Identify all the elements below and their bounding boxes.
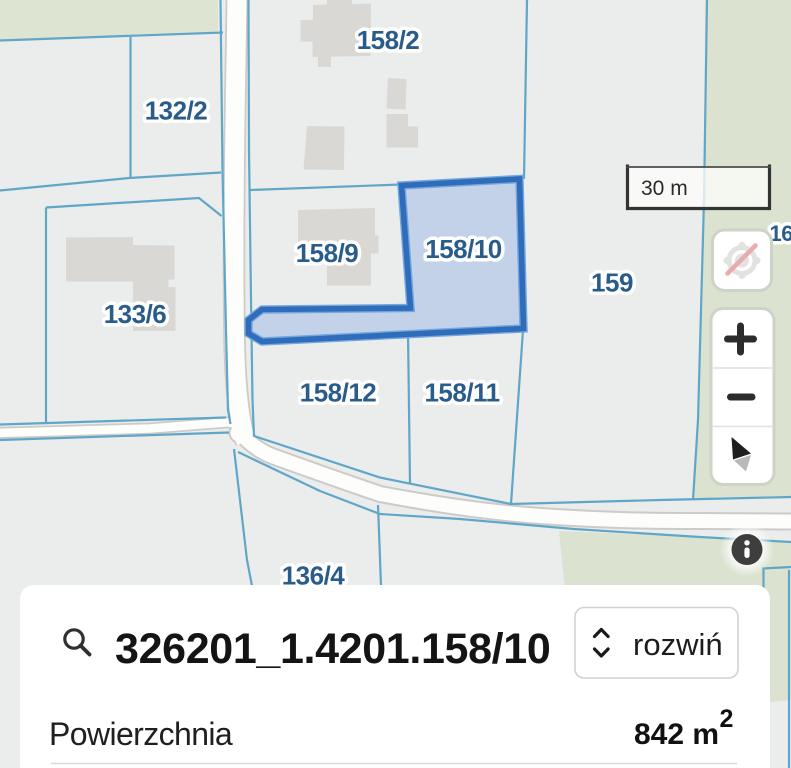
svg-text:Powierzchnia: Powierzchnia (49, 716, 233, 752)
svg-text:158/11: 158/11 (424, 378, 499, 408)
svg-text:326201_1.4201.158/10: 326201_1.4201.158/10 (115, 625, 550, 673)
svg-text:158/2: 158/2 (357, 25, 420, 55)
svg-text:159: 159 (591, 268, 633, 298)
svg-text:158/9: 158/9 (296, 238, 359, 268)
svg-text:2: 2 (720, 705, 734, 733)
svg-text:rozwiń: rozwiń (633, 627, 723, 662)
svg-text:842 m: 842 m (634, 718, 719, 751)
svg-text:133/6: 133/6 (104, 299, 167, 329)
svg-text:132/2: 132/2 (145, 96, 208, 126)
svg-text:158/12: 158/12 (300, 378, 377, 408)
svg-text:30 m: 30 m (641, 177, 688, 200)
svg-text:158/10: 158/10 (425, 234, 502, 264)
